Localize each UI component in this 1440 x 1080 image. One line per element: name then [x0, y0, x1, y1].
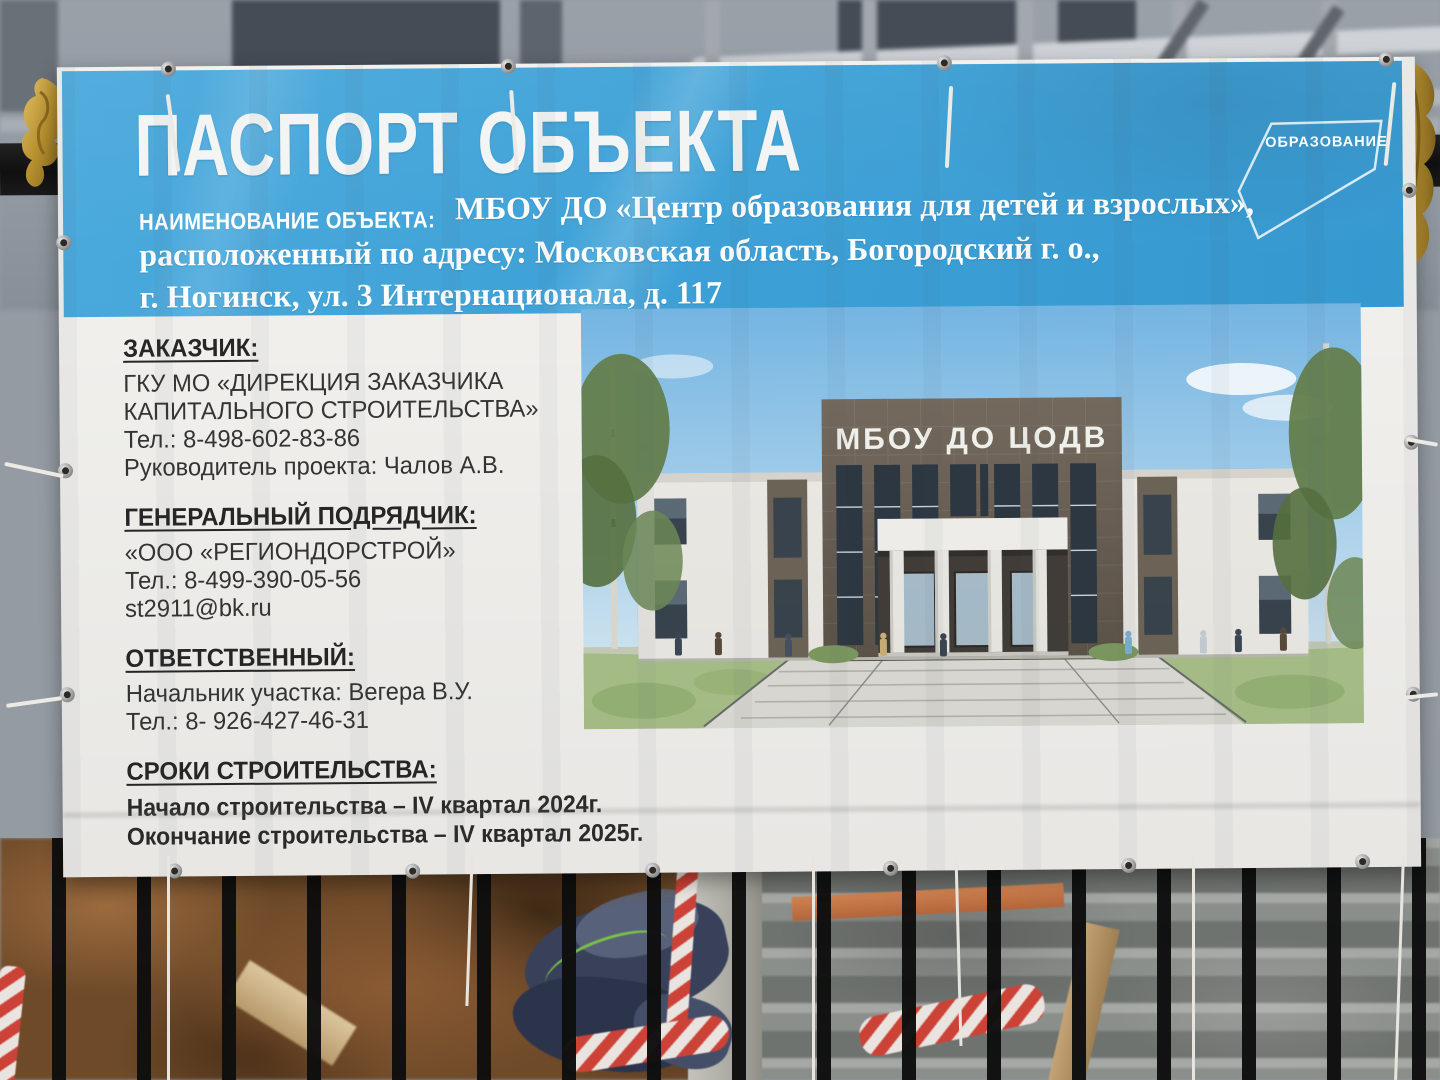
grommet [1121, 858, 1136, 873]
entrance-portico [877, 517, 1068, 659]
object-name: МБОУ ДО «Центр образования для детей и в… [455, 184, 1254, 227]
grommet [937, 55, 952, 70]
banner-title: ПАСПОРТ ОБЪЕКТА [134, 89, 802, 196]
object-passport-banner: ПАСПОРТ ОБЪЕКТА НАИМЕНОВАНИЕ ОБЪЕКТА: МБ… [57, 57, 1421, 878]
section-title: ГЕНЕРАЛЬНЫЙ ПОДРЯДЧИК: [124, 500, 585, 533]
section-responsible: ОТВЕТСТВЕННЫЙ: Начальник участка: Вегера… [125, 641, 606, 737]
section-title: ЗАКАЗЧИК: [123, 331, 584, 364]
grommet [1402, 183, 1417, 198]
contractor-phone: Тел.: 8-499-390-05-56 [125, 564, 591, 596]
project-manager: Руководитель проекта: Чалов А.В. [124, 451, 590, 483]
section-title: СРОКИ СТРОИТЕЛЬСТВА: [126, 754, 587, 787]
section-construction-dates: СРОКИ СТРОИТЕЛЬСТВА: Начало строительств… [126, 754, 607, 852]
object-address-line-1: расположенный по адресу: Московская обла… [139, 229, 1099, 274]
banner-header: ПАСПОРТ ОБЪЕКТА НАИМЕНОВАНИЕ ОБЪЕКТА: МБ… [62, 61, 1404, 318]
responsible-phone: Тел.: 8- 926-427-46-31 [126, 705, 592, 737]
construction-site-photo: ПАСПОРТ ОБЪЕКТА НАИМЕНОВАНИЕ ОБЪЕКТА: МБ… [0, 0, 1440, 1080]
contractor-email: st2911@bk.ru [125, 592, 591, 624]
customer-phone: Тел.: 8-498-602-83-86 [124, 423, 590, 455]
building-sign: МБОУ ДО ЦОДВ [835, 421, 1108, 456]
construction-end: Окончание строительства – IV квартал 202… [127, 819, 578, 852]
grommet [405, 864, 420, 879]
contractor-name: «ООО «РЕГИОНДОРСТРОЙ» [125, 536, 591, 568]
hanging-rope [1192, 856, 1195, 1080]
zip-tie [4, 462, 63, 478]
grommet [645, 863, 660, 878]
grommet [1355, 854, 1370, 869]
grommet [883, 861, 898, 876]
obrazovanie-logo: ОБРАЗОВАНИЕ [1220, 107, 1391, 258]
grommet [1379, 52, 1394, 67]
grommet [501, 59, 516, 74]
site-manager: Начальник участка: Вегера В.У. [126, 677, 592, 709]
hanging-rope [167, 856, 170, 1080]
grommet [161, 61, 176, 76]
zip-tie [6, 696, 62, 707]
banner-info-column: ЗАКАЗЧИК: ГКУ МО «ДИРЕКЦИЯ ЗАКАЗЧИКА КАП… [123, 331, 607, 873]
section-line: КАПИТАЛЬНОГО СТРОИТЕЛЬСТВА» [123, 395, 589, 427]
grommet [56, 235, 71, 250]
section-customer: ЗАКАЗЧИК: ГКУ МО «ДИРЕКЦИЯ ЗАКАЗЧИКА КАП… [123, 331, 604, 483]
render-plaza-stairs [704, 656, 1247, 728]
building-rendering: МБОУ ДО ЦОДВ [581, 303, 1364, 729]
hanging-rope [812, 856, 815, 1080]
section-line: ГКУ МО «ДИРЕКЦИЯ ЗАКАЗЧИКА [123, 367, 589, 399]
section-general-contractor: ГЕНЕРАЛЬНЫЙ ПОДРЯДЧИК: «ООО «РЕГИОНДОРСТ… [124, 500, 605, 624]
obrazovanie-logo-label: ОБРАЗОВАНИЕ [1265, 134, 1388, 151]
section-title: ОТВЕТСТВЕННЫЙ: [125, 641, 586, 674]
grommet [60, 687, 75, 702]
object-name-label: НАИМЕНОВАНИЕ ОБЪЕКТА: [139, 206, 435, 235]
construction-start: Начало строительства – IV квартал 2024г. [127, 790, 578, 823]
